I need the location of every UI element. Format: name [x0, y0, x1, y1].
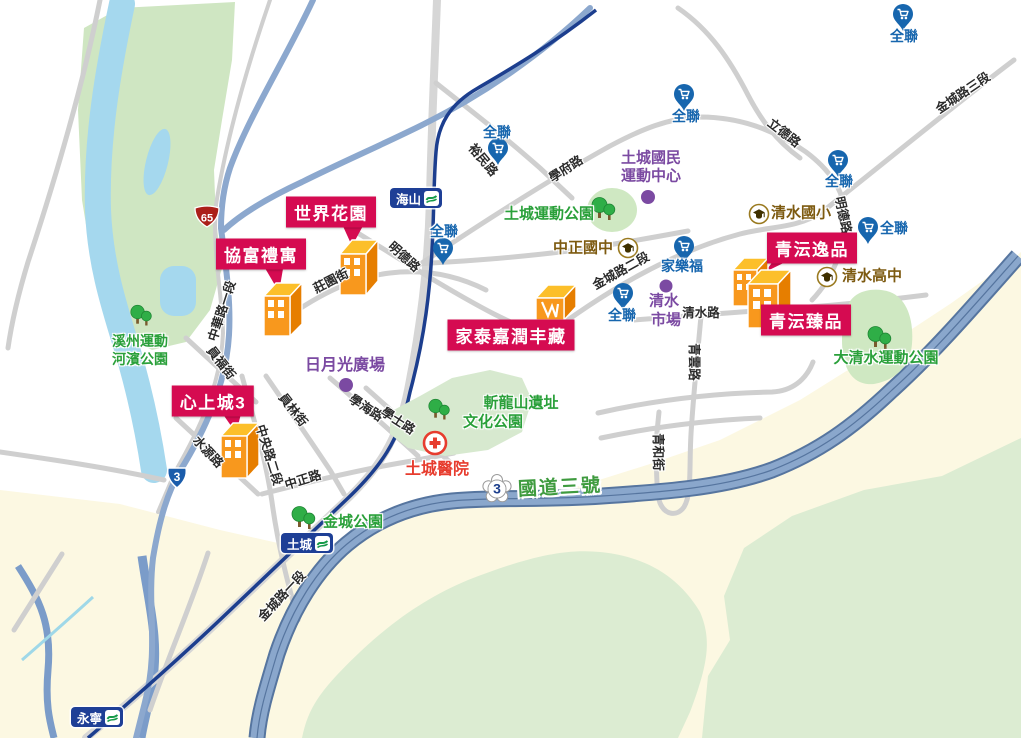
market-label-line2: 市場 — [651, 313, 681, 330]
school-label-qingshui-es: 清水國小 — [771, 206, 831, 223]
pxmart-label: 全聯 — [890, 29, 918, 45]
mrt-station-haishan: 海山 — [390, 188, 442, 208]
pxmart-label: 全聯 — [608, 308, 636, 324]
location-map: 65 3 3 裕民路 學府路 立德路 金城路三段 明德路 明德路 莊園街 中華路… — [0, 0, 1021, 738]
property-callout-xiefuliyu: 協富禮寓 — [216, 239, 306, 270]
pxmart-label: 全聯 — [880, 221, 908, 237]
road-label-qingshui: 清水路 — [682, 306, 720, 320]
mrt-station-tucheng: 土城 — [281, 533, 333, 553]
property-callout-xinshangcheng3: 心上城3 — [172, 386, 254, 417]
road-label-mingde-east: 明德路 — [832, 195, 853, 235]
pxmart-label: 全聯 — [825, 174, 853, 190]
station-name: 土城 — [287, 534, 312, 553]
school-label-qingshui-hs: 清水高中 — [842, 269, 902, 286]
pxmart-label: 全聯 — [483, 125, 511, 141]
road-label-zhonghua1: 中華路一段 — [206, 279, 239, 343]
road-label-qingyun: 青雲路 — [687, 343, 701, 381]
road-label-xuehai: 學海路 — [346, 392, 385, 424]
station-name: 海山 — [396, 189, 421, 208]
park-label-xizhou-line2: 河濱公園 — [112, 352, 168, 368]
carrefour-label: 家樂福 — [661, 259, 703, 275]
mrt-logo-icon — [105, 710, 120, 725]
road-label-shuiyuan: 水源路 — [190, 434, 226, 471]
road-label-xueshi: 學士路 — [378, 405, 417, 437]
road-label-zhongzheng: 中正路 — [283, 468, 323, 492]
road-label-xuefu: 學府路 — [546, 153, 585, 185]
label-layer: 裕民路 學府路 立德路 金城路三段 明德路 明德路 莊園街 中華路一段 員福街 … — [0, 0, 1021, 738]
road-label-jincheng3: 金城路三段 — [933, 70, 993, 117]
school-label-zhongzheng: 中正國中 — [553, 241, 613, 258]
pxmart-label: 全聯 — [430, 224, 458, 240]
market-label-line1: 清水 — [649, 294, 679, 311]
park-label-daqingshui: 大清水運動公園 — [833, 351, 938, 368]
national-highway-3-label: 國道三號 — [517, 475, 602, 501]
sports-center-label-line2: 運動中心 — [621, 169, 681, 186]
property-callout-qingyun-yipin: 青沄逸品 — [767, 233, 857, 264]
road-label-lide: 立德路 — [765, 116, 803, 150]
mrt-logo-icon — [424, 191, 439, 206]
park-label-zhanlongshan-line2: 文化公園 — [463, 415, 523, 432]
park-label-xizhou-line1: 溪州運動 — [112, 334, 168, 350]
road-label-zhuangyuan: 莊園街 — [311, 266, 351, 296]
property-callout-jiatai: 家泰嘉潤丰藏 — [448, 320, 575, 351]
road-label-qinghe: 青和街 — [651, 433, 665, 471]
park-label-jincheng: 金城公園 — [323, 515, 383, 532]
station-name: 永寧 — [77, 708, 102, 727]
park-label-tucheng-sport: 土城運動公園 — [504, 207, 594, 224]
property-callout-qingyun-zhenpin: 青沄臻品 — [761, 305, 851, 336]
road-label-mingde-west: 明德路 — [385, 239, 422, 275]
road-label-jincheng1: 金城路一段 — [256, 568, 309, 623]
mrt-station-yongning: 永寧 — [71, 707, 123, 727]
riyueguang-label: 日月光廣場 — [305, 357, 385, 375]
road-label-yuanfu: 員福街 — [204, 344, 238, 382]
park-label-zhanlongshan-line1: 斬龍山遺址 — [483, 396, 558, 413]
sports-center-label-line1: 土城國民 — [621, 151, 681, 168]
road-label-yumin: 裕民路 — [466, 141, 501, 179]
mrt-logo-icon — [315, 536, 330, 551]
property-callout-shijiehuayuan: 世界花園 — [286, 197, 376, 228]
pxmart-label: 全聯 — [672, 109, 700, 125]
hospital-label: 土城醫院 — [405, 461, 469, 479]
road-label-zhongyang2: 中央路二段 — [253, 423, 285, 487]
road-label-yuanlin: 員林街 — [276, 391, 310, 429]
